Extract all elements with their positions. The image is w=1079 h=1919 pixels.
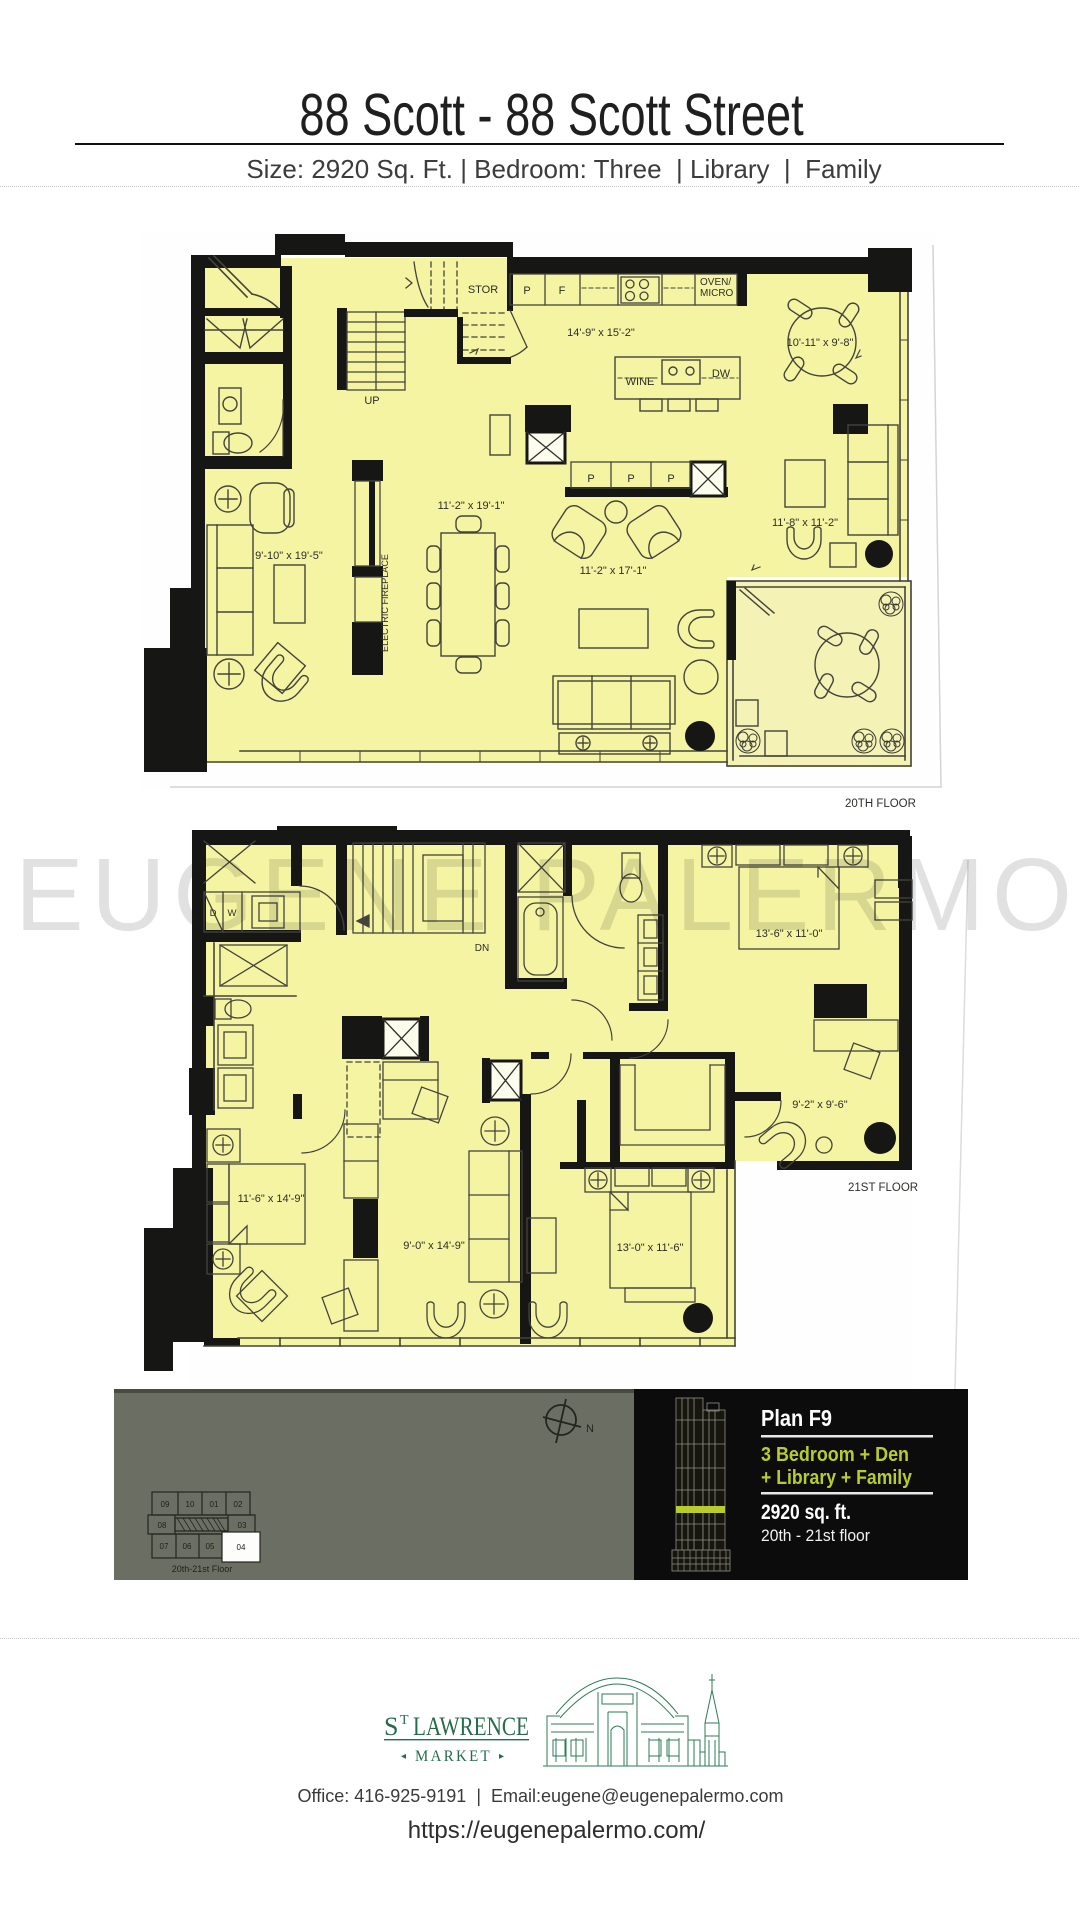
svg-text:LAWRENCE: LAWRENCE <box>413 1712 529 1741</box>
svg-text:09: 09 <box>161 1500 170 1509</box>
svg-text:N: N <box>586 1423 594 1435</box>
svg-text:MARKET: MARKET <box>415 1748 492 1765</box>
svg-text:03: 03 <box>238 1521 247 1530</box>
svg-text:11'-2" x 19'-1": 11'-2" x 19'-1" <box>438 500 505 512</box>
svg-text:9'-2" x 9'-6": 9'-2" x 9'-6" <box>792 1099 848 1111</box>
svg-text:DW: DW <box>712 368 731 380</box>
svg-text:20TH FLOOR: 20TH FLOOR <box>845 798 916 810</box>
svg-text:04: 04 <box>237 1543 246 1552</box>
svg-text:P: P <box>587 473 594 485</box>
svg-text:9'-10" x 19'-5": 9'-10" x 19'-5" <box>255 550 323 562</box>
svg-text:P: P <box>523 285 530 297</box>
svg-text:S: S <box>384 1712 398 1741</box>
svg-text:STOR: STOR <box>468 284 498 296</box>
svg-text:ELECTRIC FIREPLACE: ELECTRIC FIREPLACE <box>380 554 391 652</box>
svg-text:07: 07 <box>160 1542 169 1551</box>
svg-text:F: F <box>559 285 566 297</box>
svg-text:P: P <box>627 473 634 485</box>
svg-text:20th-21st Floor: 20th-21st Floor <box>172 1564 233 1574</box>
svg-text:P: P <box>667 473 674 485</box>
svg-text:10: 10 <box>186 1500 195 1509</box>
svg-text:▸: ▸ <box>499 1751 504 1762</box>
svg-text:+ Library + Family: + Library + Family <box>761 1467 913 1489</box>
svg-text:WINE: WINE <box>626 376 655 388</box>
svg-text:21ST FLOOR: 21ST FLOOR <box>848 1182 918 1194</box>
svg-text:◂: ◂ <box>401 1751 406 1762</box>
svg-text:2920 sq. ft.: 2920 sq. ft. <box>761 1501 851 1524</box>
svg-text:10'-11" x 9'-8": 10'-11" x 9'-8" <box>787 337 854 349</box>
svg-text:14'-9" x 15'-2": 14'-9" x 15'-2" <box>567 327 635 339</box>
svg-text:T: T <box>400 1713 409 1728</box>
svg-text:13'-0" x 11'-6": 13'-0" x 11'-6" <box>617 1242 684 1254</box>
svg-text:06: 06 <box>183 1542 192 1551</box>
svg-text:11'-6" x 14'-9": 11'-6" x 14'-9" <box>238 1193 305 1205</box>
svg-text:01: 01 <box>210 1500 219 1509</box>
svg-text:02: 02 <box>234 1500 243 1509</box>
svg-text:11'-8" x 11'-2": 11'-8" x 11'-2" <box>772 517 838 529</box>
svg-text:11'-2" x 17'-1": 11'-2" x 17'-1" <box>580 565 647 577</box>
svg-text:05: 05 <box>206 1542 215 1551</box>
svg-text:Plan F9: Plan F9 <box>761 1405 832 1431</box>
svg-text:OVEN/: OVEN/ <box>700 277 731 288</box>
svg-text:3 Bedroom + Den: 3 Bedroom + Den <box>761 1444 909 1466</box>
svg-text:08: 08 <box>158 1521 167 1530</box>
svg-text:UP: UP <box>364 395 379 407</box>
svg-text:MICRO: MICRO <box>700 288 734 299</box>
svg-text:20th - 21st floor: 20th - 21st floor <box>761 1526 870 1545</box>
svg-text:9'-0" x 14'-9": 9'-0" x 14'-9" <box>403 1240 465 1252</box>
